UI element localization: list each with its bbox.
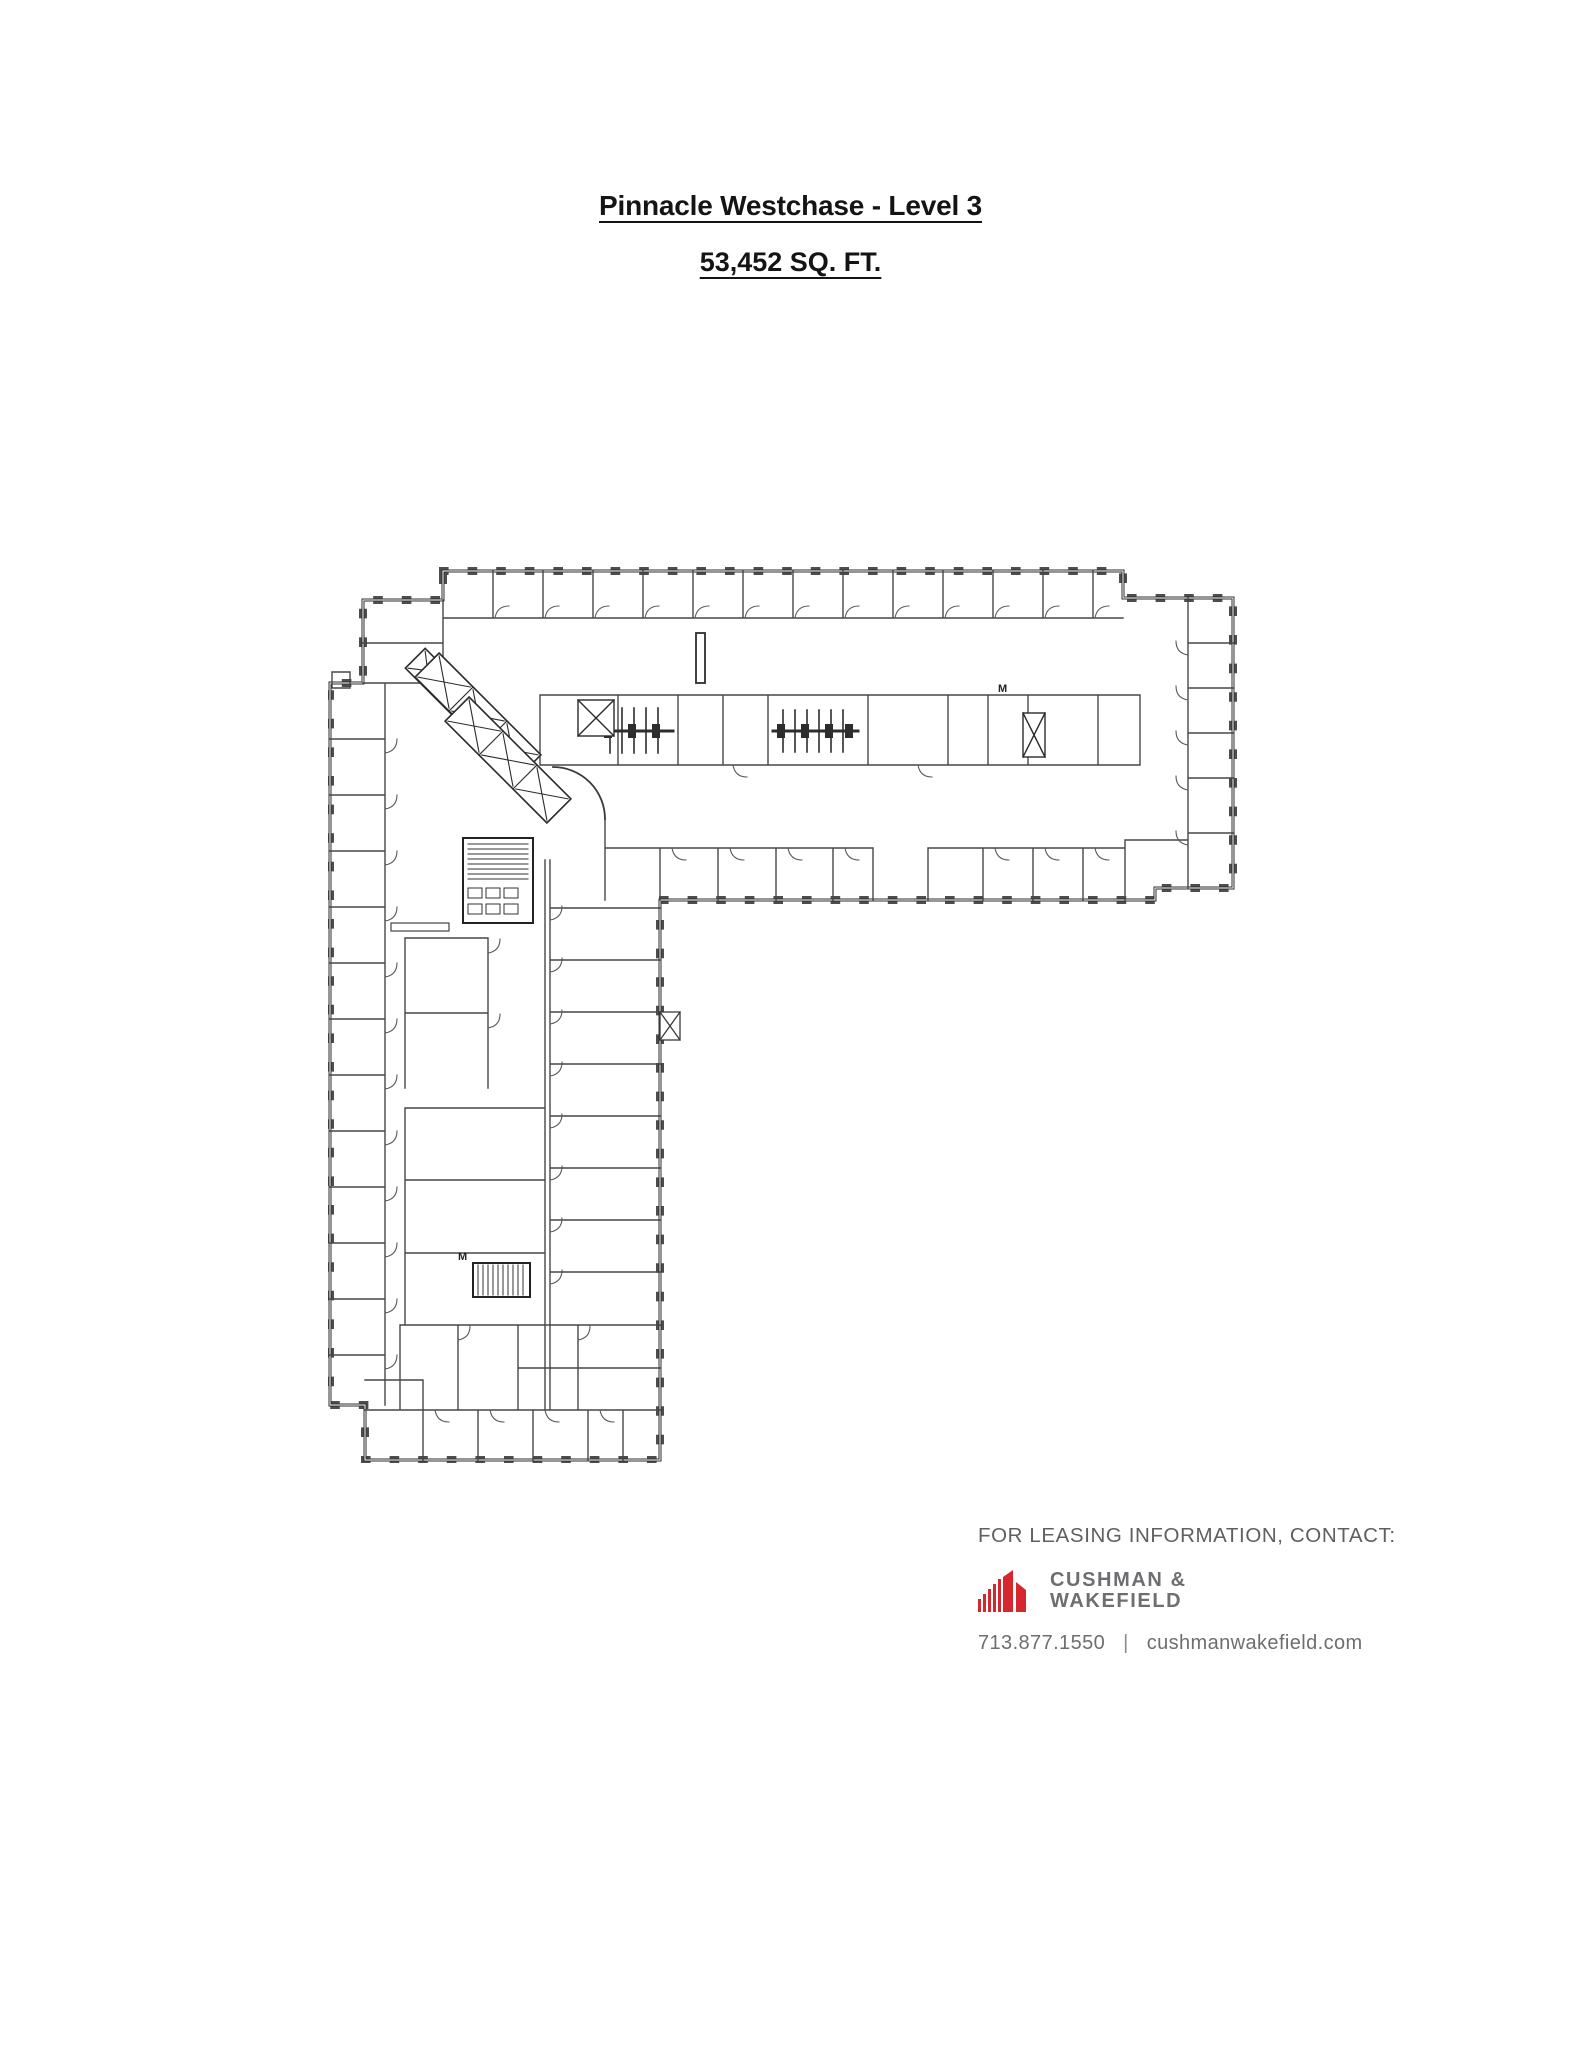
contact-details: 713.877.1550 | cushmanwakefield.com (978, 1632, 1338, 1655)
phone-number: 713.877.1550 (978, 1632, 1105, 1654)
utility-bump-icon (660, 1012, 680, 1040)
page-subtitle: 53,452 SQ. FT. (0, 247, 1581, 278)
column-chase (696, 633, 705, 683)
stair-x-icon (578, 700, 614, 736)
page-title: Pinnacle Westchase - Level 3 (0, 190, 1581, 222)
title-block: Pinnacle Westchase - Level 3 53,452 SQ. … (0, 190, 1581, 278)
service-elevator-icon (1023, 713, 1045, 757)
counter (391, 923, 449, 931)
separator: | (1123, 1632, 1129, 1654)
logo-line2: WAKEFIELD (1050, 1591, 1187, 1612)
cushman-wakefield-logo-icon (978, 1570, 1036, 1612)
flyer-page: Pinnacle Westchase - Level 3 53,452 SQ. … (0, 0, 1581, 2048)
floor-plan: M M (328, 548, 1238, 1463)
logo-line1: CUSHMAN & (1050, 1570, 1187, 1591)
cushman-wakefield-logo: CUSHMAN & WAKEFIELD (978, 1570, 1338, 1612)
cushman-wakefield-logo-text: CUSHMAN & WAKEFIELD (1050, 1570, 1187, 1612)
contact-block: FOR LEASING INFORMATION, CONTACT: CUSHMA… (978, 1524, 1338, 1655)
website: cushmanwakefield.com (1147, 1632, 1363, 1654)
core-stair-block (463, 838, 533, 923)
restroom-label: M (998, 683, 1007, 695)
lower-stair-block (473, 1263, 530, 1297)
leasing-contact-heading: FOR LEASING INFORMATION, CONTACT: (978, 1524, 1338, 1548)
restroom-label: M (458, 1251, 467, 1263)
floor-plan-svg: M M (328, 548, 1238, 1463)
